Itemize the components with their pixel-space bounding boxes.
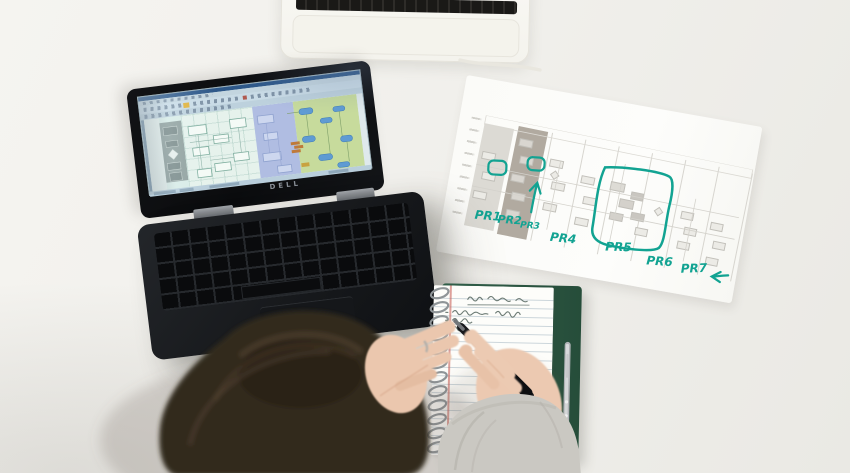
desk-scene: PR1 PR2 PR3 PR4 PR5 PR6 PR7: [0, 0, 850, 473]
person-overlay: [0, 0, 850, 473]
